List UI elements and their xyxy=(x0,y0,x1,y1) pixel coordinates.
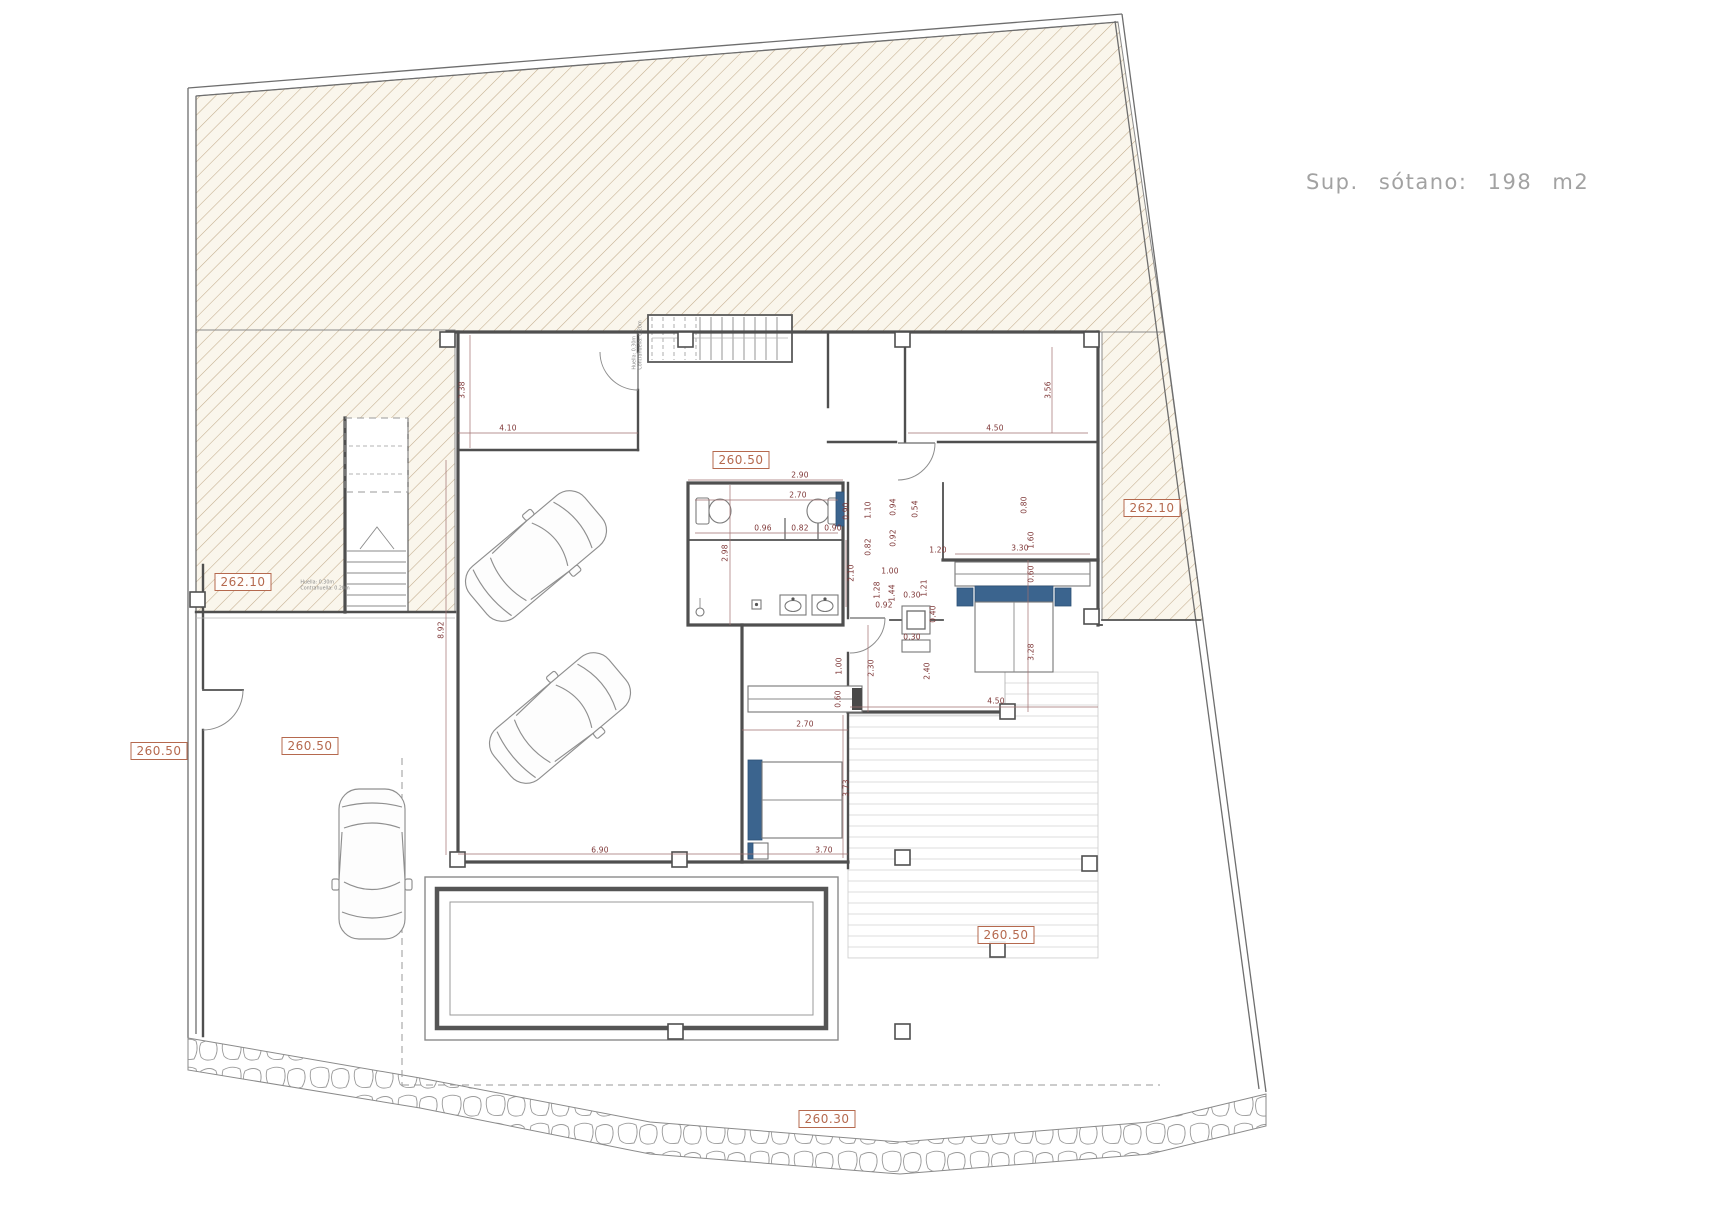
dimension-label: 2.30 xyxy=(867,659,875,677)
dimension-label: 0.94 xyxy=(889,498,897,516)
dimension-label: 3.70 xyxy=(815,846,833,854)
dimension-label: 0.30 xyxy=(903,633,921,641)
dimension-label: 1.28 xyxy=(873,581,881,599)
storage-closet xyxy=(902,606,930,652)
terrace-decking xyxy=(848,672,1098,958)
dimension-label: 0.92 xyxy=(875,601,893,609)
elevation-marker: 260.50 xyxy=(713,451,770,469)
dimension-label: 1.20 xyxy=(929,546,947,554)
dimension-label: 0.80 xyxy=(1020,496,1028,514)
interior-stairs xyxy=(648,315,792,362)
dimension-label: 1.21 xyxy=(920,579,928,597)
bathroom-fixtures xyxy=(696,492,844,616)
nightstand xyxy=(1055,588,1071,606)
dimension-label: 1.10 xyxy=(864,501,872,519)
bed-headboard xyxy=(748,760,762,840)
dimension-label: 8.92 xyxy=(437,621,445,639)
stair-note: Huella: 0.30mContrahuella: 0.20m xyxy=(632,320,643,369)
dimension-label: 2.10 xyxy=(847,564,855,582)
dimension-label: 2.98 xyxy=(721,544,729,562)
dimension-label: 0.60 xyxy=(1027,565,1035,583)
dimension-label: 0.30 xyxy=(903,591,921,599)
dimension-label: 0.90 xyxy=(842,502,850,520)
dimension-label: 0.92 xyxy=(889,529,897,547)
dimension-label: 6.90 xyxy=(591,846,609,854)
pool xyxy=(425,877,838,1040)
elevation-marker: 262.10 xyxy=(215,573,272,591)
dimension-label: 2.70 xyxy=(789,491,807,499)
dimension-label: 4.50 xyxy=(987,697,1005,705)
bed-headboard xyxy=(975,586,1053,602)
dimension-label: 0.40 xyxy=(929,605,937,623)
exterior-stairs xyxy=(345,418,408,612)
nightstand xyxy=(957,588,973,606)
floor-plan: Sup. sótano: 198 m2 262.10262.10260.5026… xyxy=(0,0,1710,1208)
elevation-marker: 262.10 xyxy=(1124,499,1181,517)
dimension-label: 2.70 xyxy=(796,720,814,728)
dimension-label: 3.73 xyxy=(842,779,850,797)
dimension-label: 1.44 xyxy=(888,584,896,602)
dimension-label: 0.54 xyxy=(911,500,919,518)
dimension-label: 3.38 xyxy=(458,381,466,399)
lower-bedroom-furniture xyxy=(748,686,862,859)
elevation-marker: 260.30 xyxy=(799,1110,856,1128)
dimension-label: 2.90 xyxy=(791,471,809,479)
dimension-label: 0.90 xyxy=(824,524,842,532)
stone-wall xyxy=(188,1038,1266,1174)
dimension-label: 3.56 xyxy=(1044,381,1052,399)
dimension-label: 1.00 xyxy=(835,657,843,675)
dimension-label: 1.60 xyxy=(1027,531,1035,549)
plan-title: Sup. sótano: 198 m2 xyxy=(1306,170,1589,194)
dimension-label: 3.28 xyxy=(1027,643,1035,661)
dimension-label: 0.82 xyxy=(791,524,809,532)
elevation-marker: 260.50 xyxy=(282,737,339,755)
elevation-marker: 260.50 xyxy=(131,742,188,760)
dimension-label: 1.00 xyxy=(881,567,899,575)
master-bedroom-furniture xyxy=(955,562,1090,672)
dimension-label: 4.10 xyxy=(499,424,517,432)
stair-note: Huella: 0.30mContrahuella: 0.20m xyxy=(300,580,349,591)
dimension-label: 0.60 xyxy=(834,690,842,708)
dimension-label: 0.96 xyxy=(754,524,772,532)
elevation-marker: 260.50 xyxy=(978,926,1035,944)
dimension-label: 4.50 xyxy=(986,424,1004,432)
dimension-label: 0.82 xyxy=(864,538,872,556)
dimension-label: 2.40 xyxy=(923,662,931,680)
